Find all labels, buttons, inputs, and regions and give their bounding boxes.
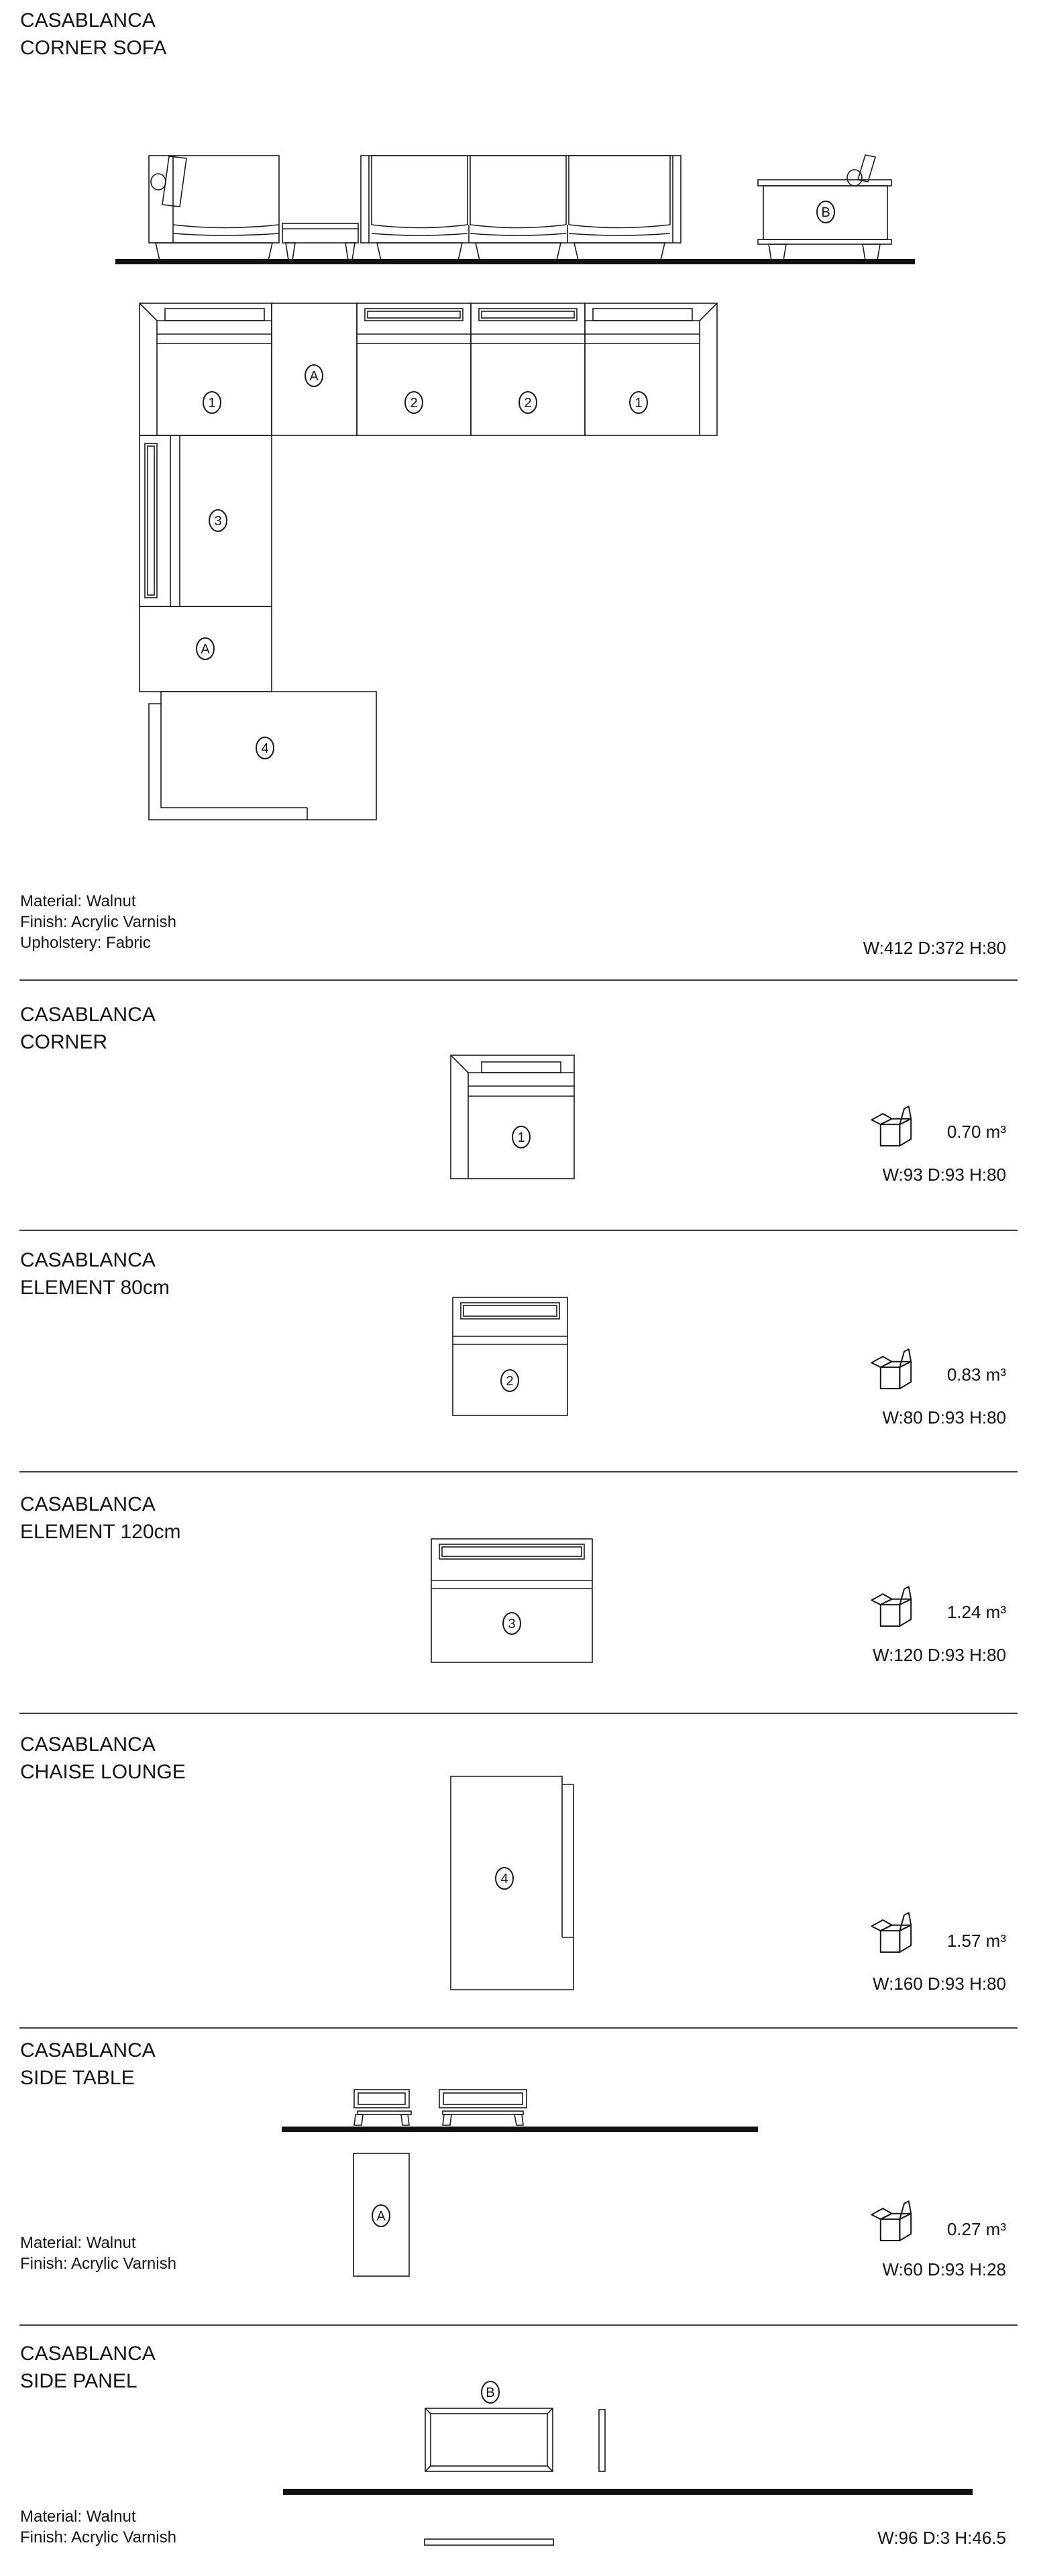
finish-line: Finish: Acrylic Varnish (20, 2527, 176, 2548)
dimensions-value: W:96 D:3 H:46.5 (724, 2528, 1006, 2548)
finish-line: Finish: Acrylic Varnish (20, 2253, 176, 2274)
plan-element80-b: 2 (471, 303, 585, 435)
volume-value: 0.27 m³ (724, 2219, 1006, 2240)
svg-text:2: 2 (524, 396, 531, 411)
section-title-line1: CASABLANCA (20, 1731, 186, 1758)
material-line: Material: Walnut (20, 891, 176, 912)
section-title-element80: CASABLANCA ELEMENT 80cm (20, 1246, 170, 1301)
section-title-line2: SIDE PANEL (20, 2367, 156, 2395)
section-divider (19, 1471, 1018, 1472)
side-panel-edge-view (599, 2410, 605, 2471)
tilted-back-cushion (858, 155, 875, 182)
spec-sheet-page: { "header": { "title_line1": "CASABLANCA… (0, 0, 1037, 2576)
page-title: CASABLANCA CORNER SOFA (20, 7, 166, 62)
svg-text:2: 2 (506, 1374, 513, 1389)
section-title-corner: CASABLANCA CORNER (20, 1001, 156, 1056)
section-divider (19, 1230, 1018, 1231)
material-line: Material: Walnut (20, 2506, 176, 2527)
ground-line (283, 2489, 973, 2495)
plan-side-table-left: A (140, 606, 272, 692)
element80-drawing: 2 (446, 1291, 577, 1426)
side-panel-materials: Material: Walnut Finish: Acrylic Varnish (20, 2506, 176, 2548)
section-divider (19, 1713, 1018, 1714)
corner-unit-drawing: 1 (443, 1046, 590, 1194)
svg-text:3: 3 (214, 514, 221, 529)
section-title-line2: CHAISE LOUNGE (20, 1758, 186, 1786)
volume-value: 0.70 m³ (724, 1122, 1006, 1142)
dimensions-value: W:60 D:93 H:28 (724, 2259, 1006, 2280)
svg-text:A: A (201, 642, 210, 657)
svg-text:B: B (486, 2385, 494, 2400)
side-table-plan-view: A (353, 2153, 409, 2276)
upholstery-line: Upholstery: Fabric (20, 932, 176, 953)
leg (476, 243, 561, 260)
ground-line (282, 2127, 758, 2132)
leg (377, 243, 462, 260)
svg-text:A: A (309, 369, 319, 384)
side-table-front-view (354, 2090, 411, 2125)
volume-value: 0.83 m³ (724, 1364, 1006, 1385)
finish-line: Finish: Acrylic Varnish (20, 912, 176, 932)
svg-text:3: 3 (508, 1617, 515, 1631)
volume-value: 1.24 m³ (724, 1602, 1006, 1623)
leg (156, 243, 272, 260)
svg-text:1: 1 (517, 1130, 525, 1145)
elevation-side-panel: B (758, 155, 891, 260)
element120-drawing: 3 (426, 1533, 600, 1670)
dimensions-value: W:93 D:93 H:80 (724, 1165, 1006, 1185)
svg-text:A: A (376, 2209, 386, 2224)
section-title-line1: CASABLANCA (20, 1246, 170, 1274)
svg-text:4: 4 (261, 741, 268, 756)
bolster-cushion (151, 174, 166, 190)
section-divider (19, 979, 1018, 981)
plan-corner-right: 1 (585, 303, 717, 435)
side-table-side-view (439, 2090, 527, 2125)
svg-text:1: 1 (635, 396, 642, 411)
side-panel-front-view (425, 2408, 553, 2471)
page-title-line1: CASABLANCA (20, 7, 166, 34)
sofa-front-elevation-drawing: B (114, 131, 919, 272)
side-panel-drawing: B (282, 2375, 979, 2551)
dimensions-value: W:120 D:93 H:80 (724, 1645, 1006, 1666)
leg (863, 244, 880, 260)
section-divider (19, 2027, 1018, 2029)
svg-text:1: 1 (208, 396, 215, 411)
side-table-materials: Material: Walnut Finish: Acrylic Varnish (20, 2233, 176, 2274)
elevation-sofa-run (361, 156, 681, 260)
bolster-cushion (847, 170, 862, 186)
dimensions-value: W:160 D:93 H:80 (724, 1974, 1006, 1994)
section-title-line2: ELEMENT 120cm (20, 1518, 181, 1546)
plan-chaise: 4 (149, 692, 376, 820)
plan-element120: 3 (140, 435, 272, 606)
section-title-side-table: CASABLANCA SIDE TABLE (20, 2037, 156, 2092)
leg (574, 243, 665, 260)
section-title-line1: CASABLANCA (20, 2037, 156, 2064)
section-title-chaise: CASABLANCA CHAISE LOUNGE (20, 1731, 186, 1786)
marker-panel-b: B (817, 201, 834, 223)
dimensions-value: W:80 D:93 H:80 (724, 1407, 1006, 1428)
marker-panel-b: B (482, 2381, 499, 2403)
sofa-plan-drawing: 1 A 2 2 1 (138, 299, 721, 828)
svg-text:2: 2 (410, 396, 417, 411)
section-title-element120: CASABLANCA ELEMENT 120cm (20, 1491, 181, 1546)
svg-text:4: 4 (500, 1872, 508, 1886)
section-title-line2: SIDE TABLE (20, 2064, 156, 2092)
elevation-corner-unit (149, 156, 279, 260)
section-title-side-panel: CASABLANCA SIDE PANEL (20, 2340, 156, 2395)
section-title-line1: CASABLANCA (20, 1001, 156, 1028)
section-title-line2: ELEMENT 80cm (20, 1274, 170, 1301)
side-table-drawing: A (275, 2080, 765, 2288)
section-divider (19, 2324, 1018, 2326)
overview-dimensions: W:412 D:372 H:80 (724, 938, 1006, 959)
elevation-side-table (282, 223, 358, 260)
plan-element80-a: 2 (357, 303, 471, 435)
svg-text:B: B (821, 205, 830, 220)
section-title-line1: CASABLANCA (20, 2340, 156, 2367)
side-panel-plan-view (425, 2539, 553, 2545)
leg (769, 244, 786, 260)
plan-side-table-top: A (272, 303, 357, 435)
page-title-line2: CORNER SOFA (20, 34, 166, 62)
overview-materials: Material: Walnut Finish: Acrylic Varnish… (20, 891, 176, 953)
volume-value: 1.57 m³ (724, 1931, 1006, 1951)
chaise-drawing: 4 (443, 1768, 584, 1999)
material-line: Material: Walnut (20, 2233, 176, 2253)
plan-corner-left: 1 (140, 303, 272, 435)
section-title-line2: CORNER (20, 1028, 156, 1056)
section-title-line1: CASABLANCA (20, 1491, 181, 1518)
